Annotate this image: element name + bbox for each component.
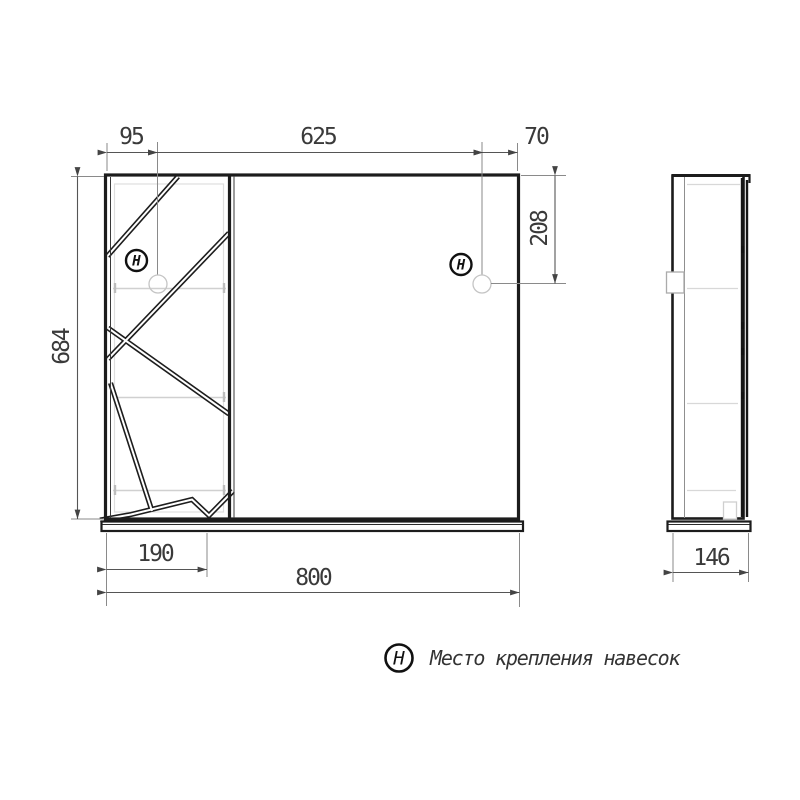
hanger-marker-symbol: H	[131, 254, 141, 270]
cabinet-outline	[106, 175, 519, 519]
hanger-marker-symbol: H	[456, 258, 466, 274]
legend-hanger-symbol: H	[392, 648, 405, 670]
dim-label-625: 625	[300, 124, 336, 150]
dim-label-70: 70	[524, 124, 549, 150]
dim-label-800: 800	[295, 565, 332, 591]
cabinet-drawing: H H	[0, 0, 800, 800]
decor-strip-highlight	[100, 491, 233, 520]
technical-drawing-page: H H	[0, 0, 800, 800]
front-plinth	[102, 522, 524, 532]
shelf-lines	[113, 289, 226, 491]
dim-label-684: 684	[49, 328, 75, 365]
side-shelf-lines	[687, 185, 740, 491]
hanger-hole-right	[473, 275, 491, 293]
hinge-mark	[741, 322, 744, 329]
front-view: H H	[100, 142, 523, 531]
hinge-mark	[741, 392, 744, 399]
leg-detail	[724, 502, 737, 519]
dim-label-208: 208	[527, 210, 553, 247]
wall-bracket	[667, 272, 685, 293]
dim-label-190: 190	[137, 541, 174, 567]
decor-strip-highlight	[111, 383, 153, 511]
side-plinth	[668, 522, 751, 532]
hinge-mark	[741, 348, 744, 355]
dim-label-95: 95	[119, 124, 143, 150]
dim-label-146: 146	[693, 545, 730, 571]
hanger-marker-right: H	[451, 254, 472, 275]
decor-strips	[100, 177, 233, 521]
legend-label: Место крепления навесок	[429, 646, 682, 670]
side-outline	[673, 176, 744, 519]
decor-strip-highlight	[108, 328, 229, 414]
legend: H Место крепления навесок	[386, 645, 682, 672]
decor-strip-highlight	[108, 177, 179, 257]
hanger-marker-left: H	[126, 250, 147, 271]
hinge-mark	[741, 246, 744, 253]
hanger-hole-left	[149, 275, 167, 293]
side-view	[667, 175, 751, 532]
shelf-pins	[115, 283, 224, 495]
